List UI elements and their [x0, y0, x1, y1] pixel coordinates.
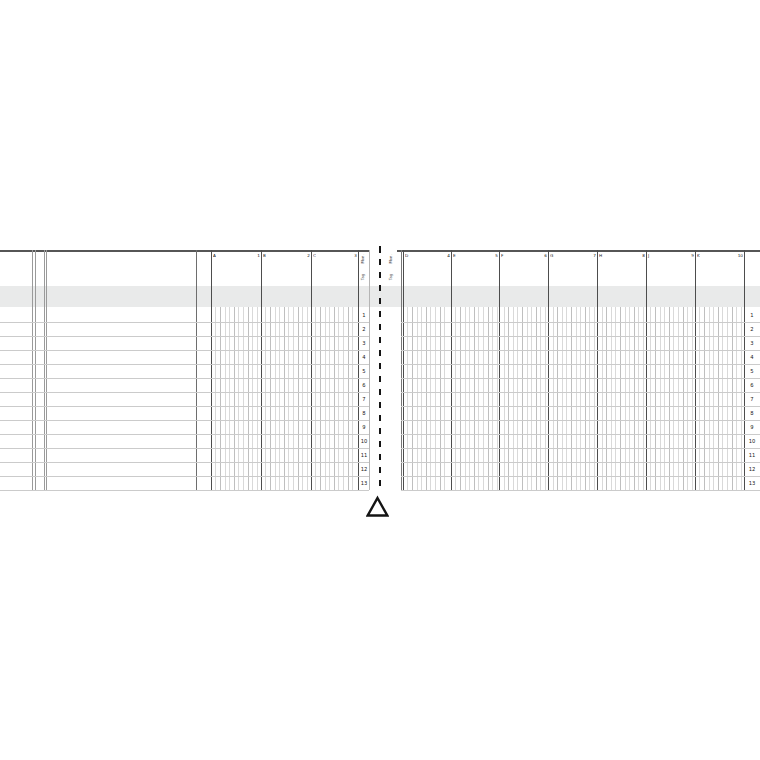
row-line — [401, 406, 760, 407]
column-border — [744, 250, 745, 490]
row-number: 6 — [746, 381, 756, 388]
row-line — [401, 322, 760, 323]
delta-triangle-shape — [367, 498, 387, 516]
column-number: 4 — [437, 253, 450, 258]
row-line — [401, 448, 760, 449]
row-line — [401, 434, 760, 435]
row-number: 3 — [746, 339, 756, 346]
column-letter: D — [405, 253, 408, 258]
ledger-sheet: A1B2C312345678910111213Mon.Tag D4E5F6G7H… — [0, 0, 760, 760]
rule-vertical — [401, 250, 402, 490]
row-line — [401, 392, 760, 393]
delta-fold-mark-icon — [366, 495, 389, 518]
column-border — [451, 250, 452, 490]
column-letter: E — [453, 253, 456, 258]
column-border — [646, 250, 647, 490]
row-number: 2 — [746, 325, 756, 332]
row-line — [401, 350, 760, 351]
row-number: 11 — [746, 451, 756, 458]
column-border — [403, 250, 404, 490]
column-number: 9 — [681, 253, 694, 258]
row-line — [401, 378, 760, 379]
row-number: 10 — [746, 437, 756, 444]
column-number: 10 — [730, 253, 743, 258]
row-number: 4 — [746, 353, 756, 360]
column-border — [499, 250, 500, 490]
row-line — [401, 364, 760, 365]
column-letter: J — [648, 253, 649, 258]
column-border — [548, 250, 549, 490]
rotated-microtext: Mon. — [388, 254, 393, 263]
column-border — [597, 250, 598, 490]
column-border — [695, 250, 696, 490]
rotated-microtext: Tag — [388, 272, 393, 281]
row-number: 13 — [746, 479, 756, 486]
row-number: 5 — [746, 367, 756, 374]
column-number: 5 — [485, 253, 498, 258]
row-number: 8 — [746, 409, 756, 416]
row-number: 9 — [746, 423, 756, 430]
column-number: 6 — [534, 253, 547, 258]
column-letter: K — [697, 253, 700, 258]
row-line — [401, 476, 760, 477]
fold-dashed-line — [379, 246, 382, 492]
row-line — [401, 420, 760, 421]
column-number: 7 — [583, 253, 596, 258]
row-number: 12 — [746, 465, 756, 472]
row-number: 7 — [746, 395, 756, 402]
row-line — [401, 462, 760, 463]
row-number: 1 — [746, 311, 756, 318]
row-line — [401, 336, 760, 337]
column-letter: F — [501, 253, 503, 258]
column-letter: H — [599, 253, 602, 258]
column-number: 8 — [632, 253, 645, 258]
row-line — [401, 490, 760, 491]
column-letter: G — [550, 253, 553, 258]
